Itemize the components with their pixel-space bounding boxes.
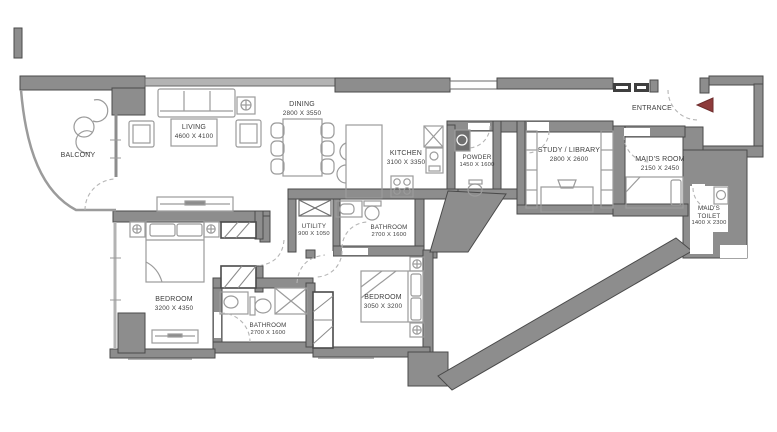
wall-balcony-corner [112, 88, 145, 115]
dining-table [283, 119, 322, 176]
wall-corner-mass [408, 352, 448, 386]
wall-diagonal-band [438, 238, 692, 390]
room-name: TOILET [691, 213, 726, 221]
room-name: DINING [283, 100, 321, 109]
room-name: LIVING [175, 123, 213, 132]
wall-step-block [683, 127, 703, 152]
kitchen-counter [346, 125, 382, 198]
room-name: BEDROOM [155, 295, 193, 304]
room-label-utility: UTILITY 900 X 1050 [298, 223, 330, 238]
floor-plan: BALCONY LIVING 4600 X 4100 DINING 2800 X… [0, 0, 777, 432]
room-name: UTILITY [298, 223, 330, 231]
room-label-dining: DINING 2800 X 3550 [283, 100, 321, 118]
balcony-chair [93, 100, 108, 122]
wall-door-pier [650, 80, 658, 92]
room-name: KITCHEN [387, 149, 425, 158]
door-arc-bathroom2 [221, 313, 250, 342]
entrance-arrow-icon [697, 98, 713, 112]
wall-diagonal-upper [430, 191, 506, 252]
burner [394, 179, 400, 185]
drainboard [429, 166, 440, 171]
maids-bed [626, 177, 683, 208]
door-opening-maids-toilet [692, 184, 705, 188]
door-arc-bathroom1 [342, 222, 368, 248]
wall-right-outer [754, 84, 763, 153]
pillow [411, 274, 421, 296]
room-name: MAID'S ROOM [635, 155, 684, 164]
door-opening-maids [624, 128, 650, 136]
wall-living-bottom [113, 211, 270, 222]
tv-icon [168, 334, 182, 337]
room-label-kitchen: KITCHEN 3100 X 3350 [387, 149, 425, 167]
wall-study-left [517, 121, 525, 212]
room-name: BEDROOM [364, 293, 402, 302]
room-dims: 1400 X 2300 [691, 220, 726, 228]
wall-maids-bottom [613, 204, 688, 216]
window-living-top [145, 78, 335, 86]
room-label-powder: POWDER 1450 X 1600 [459, 154, 494, 169]
room-label-living: LIVING 4600 X 4100 [175, 123, 213, 141]
room-name: ENTRANCE [632, 104, 672, 113]
balcony-chair [76, 131, 92, 153]
room-label-bedroom-right: BEDROOM 3050 X 3200 [364, 293, 402, 311]
wall-study-right [613, 126, 625, 212]
maids-bed-fold [626, 177, 640, 192]
pillow [411, 298, 421, 320]
room-label-bedroom-master: BEDROOM 3200 X 4350 [155, 295, 193, 313]
wall-bathroom2-bottom [213, 342, 315, 353]
wall-bathroom1-right [415, 199, 424, 252]
bathroom1-basin [340, 204, 354, 214]
toilet-tank [469, 180, 482, 184]
wall-utility-left [288, 199, 296, 252]
toilet-tank [250, 297, 255, 315]
dining-chair [271, 123, 284, 138]
wall-bedroom2-top-stub [306, 250, 315, 258]
pillow [150, 224, 175, 236]
door-arc-balcony [85, 179, 116, 210]
wall-top-left-bar [14, 28, 22, 58]
room-label-bathroom-bottom: BATHROOM 2700 X 1600 [250, 322, 287, 337]
room-dims: 3100 X 3350 [387, 158, 425, 167]
maids-toilet-interior-lower [690, 232, 713, 254]
room-dims: 3050 X 3200 [364, 302, 402, 311]
room-name: BATHROOM [250, 322, 287, 330]
maids-bed-pillow [671, 180, 681, 205]
dining-chair [271, 159, 284, 174]
bathroom2-basin [224, 296, 238, 308]
room-name: POWDER [459, 154, 494, 162]
pillow [177, 224, 202, 236]
walls [14, 28, 763, 390]
wall-column-master [118, 313, 145, 353]
room-name: BATHROOM [371, 224, 408, 232]
door-opening-bathroom2 [214, 312, 221, 338]
room-dims: 4600 X 4100 [175, 132, 213, 141]
dining-chair [321, 123, 334, 138]
bed-fold [146, 262, 162, 282]
room-dims: 2800 X 2600 [538, 155, 600, 164]
room-dims: 2700 X 1600 [250, 330, 287, 338]
maids-toilet-notch [720, 245, 747, 258]
room-dims: 2800 X 3550 [283, 109, 321, 118]
armchair-seat [133, 125, 150, 143]
kitchen-sink-bowl [340, 143, 346, 160]
floor-plan-drawing [0, 0, 777, 432]
burner [404, 179, 410, 185]
door-opening-powder [468, 123, 490, 130]
dining-chair [321, 159, 334, 174]
door-arc-master [256, 240, 284, 266]
toilet-bowl [365, 206, 379, 220]
room-name: BALCONY [61, 151, 96, 160]
room-name: STUDY / LIBRARY [538, 146, 600, 155]
room-dims: 2700 X 1600 [371, 232, 408, 240]
room-label-entrance: ENTRANCE [632, 104, 672, 113]
room-name: MAID'S [691, 205, 726, 213]
sink-basin [430, 152, 438, 160]
balcony-parapet [21, 90, 116, 210]
door-arc-entrance [668, 90, 698, 120]
window-symbol-slit [637, 86, 646, 89]
wall-entry-right [700, 78, 709, 93]
wall-powder-left [447, 125, 455, 199]
sofa [158, 89, 235, 117]
room-label-study: STUDY / LIBRARY 2800 X 2600 [538, 146, 600, 164]
dining-chair [271, 141, 284, 156]
room-label-bathroom-top: BATHROOM 2700 X 1600 [371, 224, 408, 239]
room-label-balcony: BALCONY [61, 151, 96, 160]
room-label-maids-room: MAID'S ROOM 2150 X 2450 [635, 155, 684, 173]
door-opening-bathroom1 [342, 248, 368, 255]
tv-icon [185, 201, 205, 205]
window-top [450, 81, 497, 89]
wall-study-bottom [517, 205, 618, 214]
kitchen-sink-bowl [337, 165, 346, 183]
wall-kitchen-top [335, 78, 450, 92]
room-dims: 3200 X 4350 [155, 304, 193, 313]
dining-chair [321, 141, 334, 156]
room-dims: 1450 X 1600 [459, 162, 494, 170]
room-label-maids-toilet: MAID'S TOILET 1400 X 2300 [691, 205, 726, 228]
room-dims: 900 X 1050 [298, 231, 330, 239]
window-symbol-slit [616, 86, 628, 89]
balcony-table [74, 117, 94, 137]
window-symbols [613, 83, 649, 92]
door-opening-study [527, 122, 549, 131]
armchair-seat [240, 124, 257, 143]
room-dims: 2150 X 2450 [635, 164, 684, 173]
toilet-tank [364, 201, 381, 206]
toilet-bowl [255, 299, 271, 313]
wall-foyer-top [497, 78, 613, 89]
